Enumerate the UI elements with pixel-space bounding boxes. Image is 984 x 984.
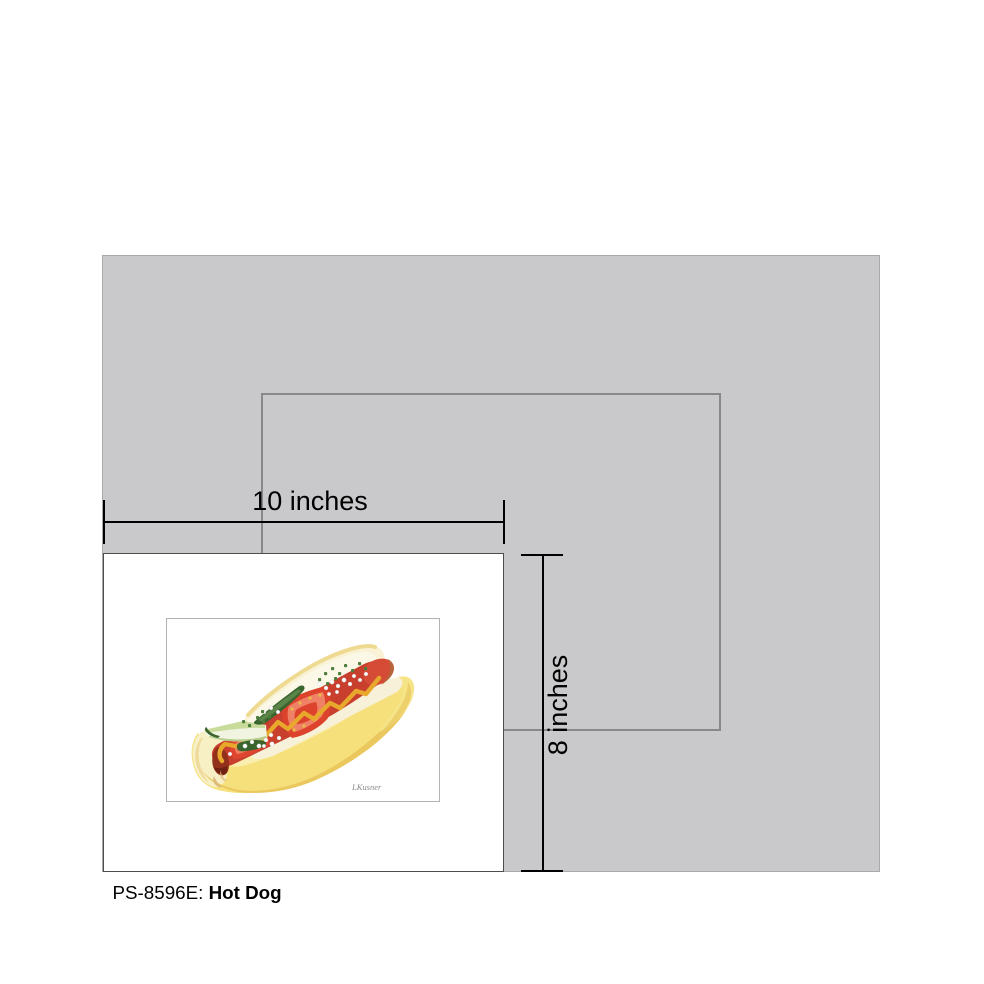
svg-text:LKusner: LKusner: [351, 782, 382, 792]
